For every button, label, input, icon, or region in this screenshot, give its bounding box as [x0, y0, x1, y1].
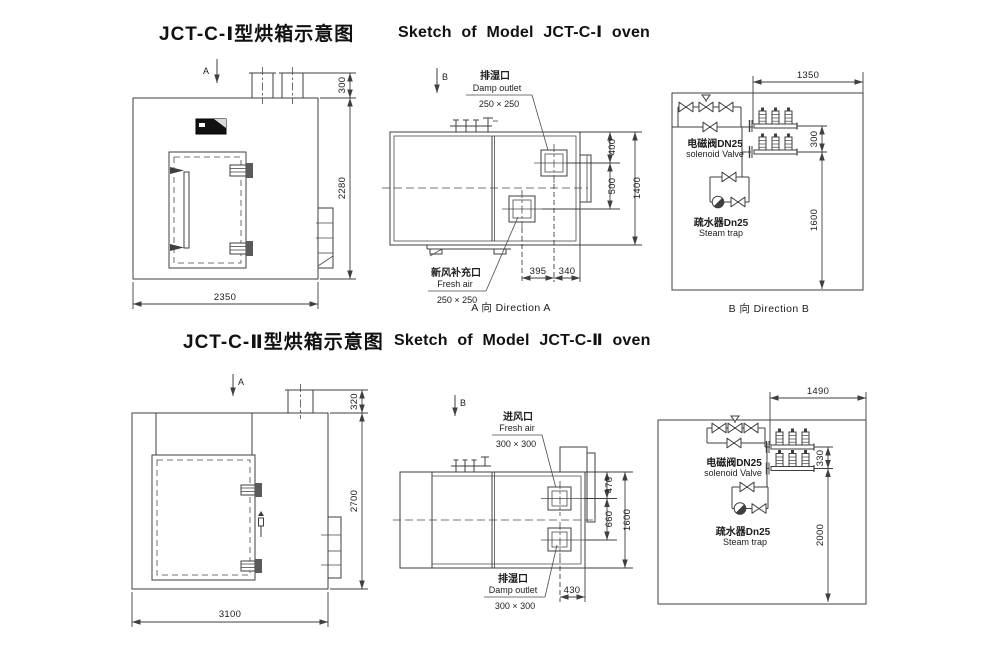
dim-heater-gap: 300 — [809, 131, 820, 148]
damp-outlet-callout: 排湿口 Damp outlet 300 × 300 — [484, 545, 557, 611]
dim-chimney-height: 300 — [337, 77, 348, 94]
valve-icon — [712, 423, 726, 433]
dim-body-width: 3100 — [219, 609, 241, 620]
fresh-air-label-cn: 新风补充口 — [431, 266, 481, 279]
oven-body — [133, 67, 333, 279]
piping-view-oven-1: 1350 电磁阀DN25 sol — [655, 60, 947, 322]
fresh-air-callout: 新风补充口 Fresh air 250 × 250 — [428, 217, 518, 305]
bypass-valve-icon — [727, 438, 741, 448]
damp-outlet-port — [541, 522, 585, 558]
section2-title-cn: JCT-C-Ⅱ型烘箱示意图 — [183, 327, 384, 354]
control-panel — [196, 119, 226, 134]
solenoid-valve-label-en: solenoid Valve — [686, 149, 744, 159]
leader-line — [486, 217, 518, 291]
damp-outlet-size: 300 × 300 — [495, 601, 535, 611]
oven-body-side — [393, 447, 597, 568]
direction-b-caption: B 向 Direction B — [729, 302, 810, 315]
finned-heater-icon — [750, 134, 798, 159]
direction-a-caption: A 向 Direction A — [471, 301, 551, 314]
section2-title-en: Sketch of Model JCT-C-Ⅱ oven — [394, 330, 651, 350]
dimensions: 300 1600 — [797, 126, 827, 289]
enclosure-outline — [658, 420, 866, 604]
view-arrow-label: B — [442, 72, 448, 82]
front-view-oven-2: A — [115, 365, 385, 637]
damp-outlet-label-en: Damp outlet — [473, 83, 522, 93]
damp-outlet-label-cn: 排湿口 — [498, 572, 528, 585]
dim-heater-to-floor: 1600 — [809, 209, 820, 231]
bypass-valve-icon — [703, 122, 717, 132]
damp-outlet-size: 250 × 250 — [479, 99, 519, 109]
steam-trap-icon — [734, 503, 746, 515]
finned-heater-icon — [767, 429, 815, 454]
fresh-air-port — [541, 481, 585, 516]
dim-heater-to-floor: 2000 — [815, 524, 826, 546]
enclosure-outline — [672, 93, 863, 290]
side-view-oven-1: B 排湿口 Damp outlet 250 × 250 — [380, 60, 660, 322]
finned-heater-icon — [750, 108, 798, 133]
dim-width: 1350 — [753, 70, 863, 124]
door-latch — [258, 511, 264, 537]
side-duct — [316, 208, 333, 268]
dim-body-height: 2280 — [337, 177, 348, 199]
door-hinge — [241, 483, 262, 497]
dimensions: 330 2000 — [814, 447, 833, 602]
base-skid — [427, 245, 511, 256]
leader-line — [542, 435, 557, 492]
leader-line — [532, 95, 550, 157]
view-arrow-b: B — [455, 395, 466, 416]
damp-outlet-label-cn: 排湿口 — [480, 69, 510, 82]
solenoid-valve-label-en: solenoid Valve — [704, 468, 762, 478]
door-hinge — [241, 559, 262, 573]
dim-width: 1490 — [770, 386, 866, 445]
chimney-vent — [285, 384, 316, 419]
valve-icon — [731, 197, 745, 207]
dim-pipe-offset: 1490 — [807, 386, 829, 397]
fresh-air-label-en: Fresh air — [499, 423, 535, 433]
dim-fresh-to-damp-x: 395 — [530, 266, 547, 277]
fresh-air-label-cn: 进风口 — [503, 410, 533, 423]
oven-door — [152, 455, 264, 580]
dim-body-height: 2700 — [349, 490, 360, 512]
valve-icon — [719, 102, 733, 112]
fresh-air-label-en: Fresh air — [437, 279, 473, 289]
door-hinge — [230, 163, 253, 178]
dimensions: 300 2280 2350 — [133, 73, 356, 309]
view-arrow-a: A — [203, 59, 217, 83]
steam-trap-label-en: Steam trap — [699, 228, 743, 238]
dim-side-height: 1400 — [632, 177, 643, 199]
valve-icon — [744, 423, 758, 433]
fresh-air-size: 300 × 300 — [496, 439, 536, 449]
valve-icon — [722, 172, 736, 182]
view-arrow-label: B — [460, 398, 466, 408]
dim-top-to-fresh: 470 — [604, 477, 615, 494]
front-view-oven-1: A — [118, 55, 370, 317]
door-handle — [170, 167, 189, 251]
damp-outlet-label-en: Damp outlet — [489, 585, 538, 595]
steam-trap-loop — [710, 172, 749, 208]
section1-title-cn: JCT-C-Ⅰ型烘箱示意图 — [159, 19, 354, 46]
steam-trap-icon — [712, 196, 724, 208]
solenoid-valve-icon — [699, 95, 713, 112]
steam-inlet-manifold — [450, 118, 498, 132]
steam-trap-label-en: Steam trap — [723, 537, 767, 547]
chimney-vent — [560, 447, 595, 522]
dim-body-width: 2350 — [214, 292, 236, 303]
view-arrow-a: A — [233, 374, 244, 396]
dim-damp-to-fresh: 500 — [607, 178, 618, 195]
piping-view-oven-2: 1490 电磁阀DN25 — [655, 385, 947, 615]
dim-pipe-offset: 1350 — [797, 70, 819, 81]
dim-damp-to-edge-x: 430 — [564, 585, 581, 596]
chimney-vent — [279, 67, 306, 104]
section1-title-en: Sketch of Model JCT-C-Ⅰ oven — [398, 22, 650, 42]
steam-trap-loop — [732, 482, 768, 514]
dim-fresh-to-damp: 660 — [604, 511, 615, 528]
finned-heater-icon — [767, 450, 815, 475]
view-arrow-b: B — [437, 68, 448, 93]
valve-icon — [679, 102, 693, 112]
dim-heater-gap: 330 — [815, 450, 826, 467]
chimney-vent — [249, 67, 276, 104]
side-duct — [580, 155, 591, 202]
steam-inlet-manifold — [451, 457, 491, 472]
view-arrow-label: A — [203, 66, 209, 76]
solenoid-valve-icon — [728, 416, 742, 433]
damp-outlet-callout: 排湿口 Damp outlet 250 × 250 — [466, 69, 550, 157]
dim-damp-to-edge-x: 340 — [559, 266, 576, 277]
drawing-sheet: JCT-C-Ⅰ型烘箱示意图 Sketch of Model JCT-C-Ⅰ ov… — [0, 0, 1000, 651]
valve-icon — [752, 504, 766, 514]
dim-side-height: 1600 — [622, 509, 633, 531]
oven-body-side — [382, 118, 591, 256]
side-view-oven-2: B 进风口 Fresh air 300 × 300 — [385, 370, 660, 620]
fresh-air-callout: 进风口 Fresh air 300 × 300 — [492, 410, 557, 492]
leader-line — [545, 545, 557, 597]
oven-body — [132, 384, 341, 589]
dim-chimney-height: 320 — [349, 393, 360, 410]
fresh-air-port — [502, 190, 542, 228]
valve-icon — [740, 482, 754, 492]
side-duct — [321, 517, 341, 578]
oven-door — [169, 152, 253, 268]
view-arrow-label: A — [238, 377, 244, 387]
door-hinge — [230, 241, 253, 256]
damp-outlet-port — [534, 144, 580, 184]
dim-top-to-damp: 400 — [607, 139, 618, 156]
